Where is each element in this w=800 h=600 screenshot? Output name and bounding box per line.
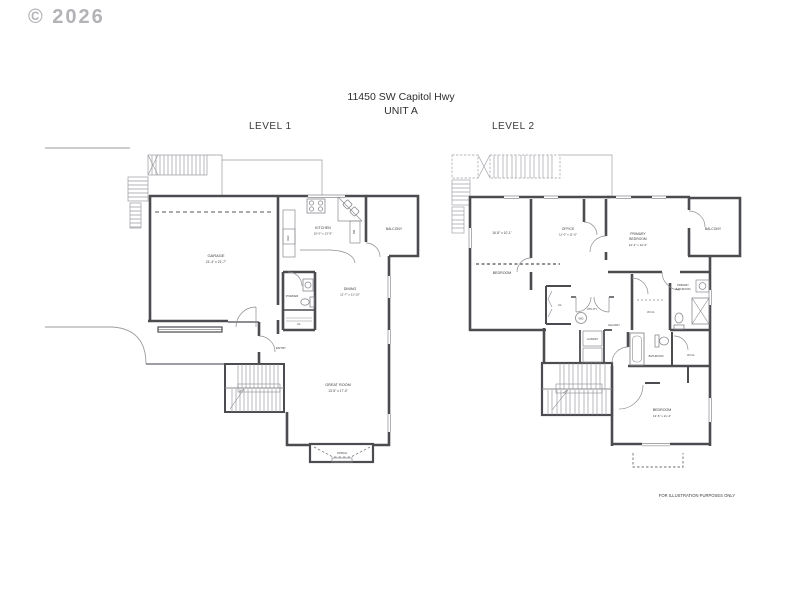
fixtures-level2: [548, 280, 709, 365]
stair2-treads-lower: [548, 390, 606, 415]
stairwell-level1: [225, 364, 284, 412]
powder-label: POWDER: [286, 294, 299, 298]
sink-bowl: [343, 200, 353, 210]
deck-lower-treads: [130, 207, 141, 227]
wicl-primary-label: W.I.CL: [647, 310, 655, 314]
wicl2-label: W.I.CL: [687, 353, 695, 357]
stair-treads-lower: [232, 389, 280, 412]
deck2-landing: [452, 155, 478, 178]
floorplan-canvas: GARAGE 21'-4" x 21'-7" KITCHEN 10'-0" x …: [0, 0, 800, 600]
fridge-label: REF: [286, 235, 290, 241]
bath-toilet-tank: [655, 335, 659, 347]
primary-toilet-tank: [674, 325, 684, 329]
burner-icon: [318, 201, 322, 205]
greatroom-label: GREAT ROOM: [325, 383, 351, 387]
powder-sink: [305, 282, 311, 288]
peninsula-counter: [300, 250, 355, 263]
balcony2-door: [689, 211, 705, 227]
bedroom2-north-stub: [645, 366, 688, 383]
roof-outline: [560, 155, 612, 196]
balcony-walls: [366, 196, 418, 256]
burner-icon: [309, 207, 313, 211]
wicl-walls: [632, 274, 710, 330]
bedroom1-top-window: [504, 196, 519, 198]
burner-icon: [318, 207, 322, 211]
deck-stair-treads: [152, 155, 204, 175]
dining-window-1: [388, 276, 390, 298]
bathtub: [630, 333, 644, 365]
bathroom-label: BATHROOM: [649, 354, 664, 358]
garage-label: GARAGE: [207, 253, 224, 258]
stove: [307, 199, 325, 213]
bedroom2-south-window: [642, 443, 670, 445]
burner-icon: [309, 201, 313, 205]
bedroom1-dims: 16'-8" x 10'-1": [492, 231, 512, 235]
stair2-treads-upper: [560, 363, 605, 389]
deck2-brace: [478, 155, 490, 178]
powder-fixtures: [286, 279, 314, 321]
closet2-label: CL: [558, 303, 562, 307]
primary-window-1: [616, 196, 631, 198]
wicl-door: [632, 278, 648, 294]
primary-bedroom-label-1: PRIMARY: [630, 232, 646, 236]
entry-label: ENTRY: [276, 346, 286, 350]
left-counter: [283, 210, 295, 257]
greatroom-window: [388, 414, 390, 432]
bath-toilet-bowl: [660, 337, 669, 345]
powder-sink-counter: [303, 279, 313, 291]
primary-window-2: [652, 196, 666, 198]
kitchen-dims: 10'-0" x 13'-9": [314, 232, 332, 236]
dishwasher-label: DW: [352, 229, 356, 234]
future-deck-dashed: [633, 453, 683, 467]
sink-bowl: [350, 207, 360, 217]
deck2-lower-treads: [452, 211, 464, 228]
hall-bath-door: [612, 347, 628, 363]
primary-toilet-bowl: [675, 313, 683, 323]
corner-counter: [338, 197, 362, 221]
bedroom2-label: BEDROOM: [653, 408, 672, 412]
kitchen-fixtures: [283, 197, 362, 263]
front-door-arc: [259, 336, 275, 352]
deck2-side-treads: [452, 184, 470, 200]
bedroom2-east-window: [709, 398, 711, 422]
bedroom1-west-window: [469, 228, 471, 248]
closet-shelves: [286, 318, 312, 321]
balcony-door-arc: [366, 243, 380, 257]
balcony2-label: BALCONY: [705, 227, 722, 231]
bedroom2-dims: 13'-6" x 11'-4": [653, 414, 671, 418]
primary-door: [590, 236, 606, 252]
deck2-stair-treads: [494, 155, 552, 178]
office-label: OFFICE: [562, 227, 575, 231]
bedroom1-door: [517, 258, 531, 272]
closet-rod-chevrons: [548, 291, 552, 317]
deck-outline: [207, 155, 322, 195]
deck-side-treads: [128, 181, 148, 197]
bathtub-inner: [633, 336, 642, 362]
toilet-tank: [310, 297, 314, 307]
level2-plan: 16'-8" x 10'-1" BEDROOM OFFICE 11'-0" x …: [452, 155, 740, 467]
porch-label: PORCH: [337, 451, 347, 455]
level1-plan: GARAGE 21'-4" x 21'-7" KITCHEN 10'-0" x …: [45, 148, 418, 462]
greatroom-dims: 13'-5" x 17'-0": [328, 389, 348, 393]
doors-level1: [236, 243, 380, 352]
laundry-stack-lower: [583, 348, 602, 362]
bedroom1-label: BEDROOM: [493, 271, 512, 275]
shower-x: [692, 298, 709, 324]
primary-bath-label-2: BATHROOM: [676, 287, 691, 291]
stair-treads-upper: [238, 364, 278, 388]
office-door: [584, 222, 597, 235]
office-top-window: [544, 196, 558, 198]
toilet-bowl: [301, 299, 309, 305]
primary-bedroom-dims: 14'-4" x 12'-2": [629, 243, 647, 247]
primary-sink-counter: [696, 280, 709, 292]
labels-level1: GARAGE 21'-4" x 21'-7" KITCHEN 10'-0" x …: [206, 226, 403, 455]
garage-dims: 21'-4" x 21'-7": [206, 260, 227, 264]
wicl2-door: [674, 336, 688, 350]
dining-dims: 11'-7" x 11'-10": [340, 293, 360, 297]
laundry-label: LAUNDRY: [587, 338, 599, 341]
dining-window-2: [388, 330, 390, 344]
disclaimer-text: FOR ILLUSTRATION PURPOSES ONLY: [659, 493, 736, 498]
powder-door-arc: [288, 272, 302, 286]
balcony-label: BALCONY: [386, 227, 403, 231]
closet-label: CL: [297, 322, 301, 326]
garage-entry-door: [236, 307, 256, 327]
deck-and-stairs: [128, 155, 322, 228]
stairwell-level2: [542, 363, 612, 415]
wd-label: W/D: [578, 317, 583, 321]
kitchen-window: [308, 195, 345, 197]
primary-bath-label-1: PRIMARY: [677, 283, 689, 287]
primary-sink: [699, 283, 706, 290]
primary-bedroom-label-2: BEDROOM: [629, 237, 647, 241]
bedroom2-door: [619, 385, 643, 409]
kitchen-label: KITCHEN: [315, 226, 331, 230]
deck-stair-brace: [148, 155, 158, 175]
driveway-curve: [45, 327, 146, 364]
hallway-label: HALLWAY: [608, 323, 620, 327]
office-dims: 11'-0" x 11'-0": [559, 233, 577, 237]
utility-label: UTILITY: [587, 307, 598, 311]
dining-label: DINING: [344, 287, 357, 291]
